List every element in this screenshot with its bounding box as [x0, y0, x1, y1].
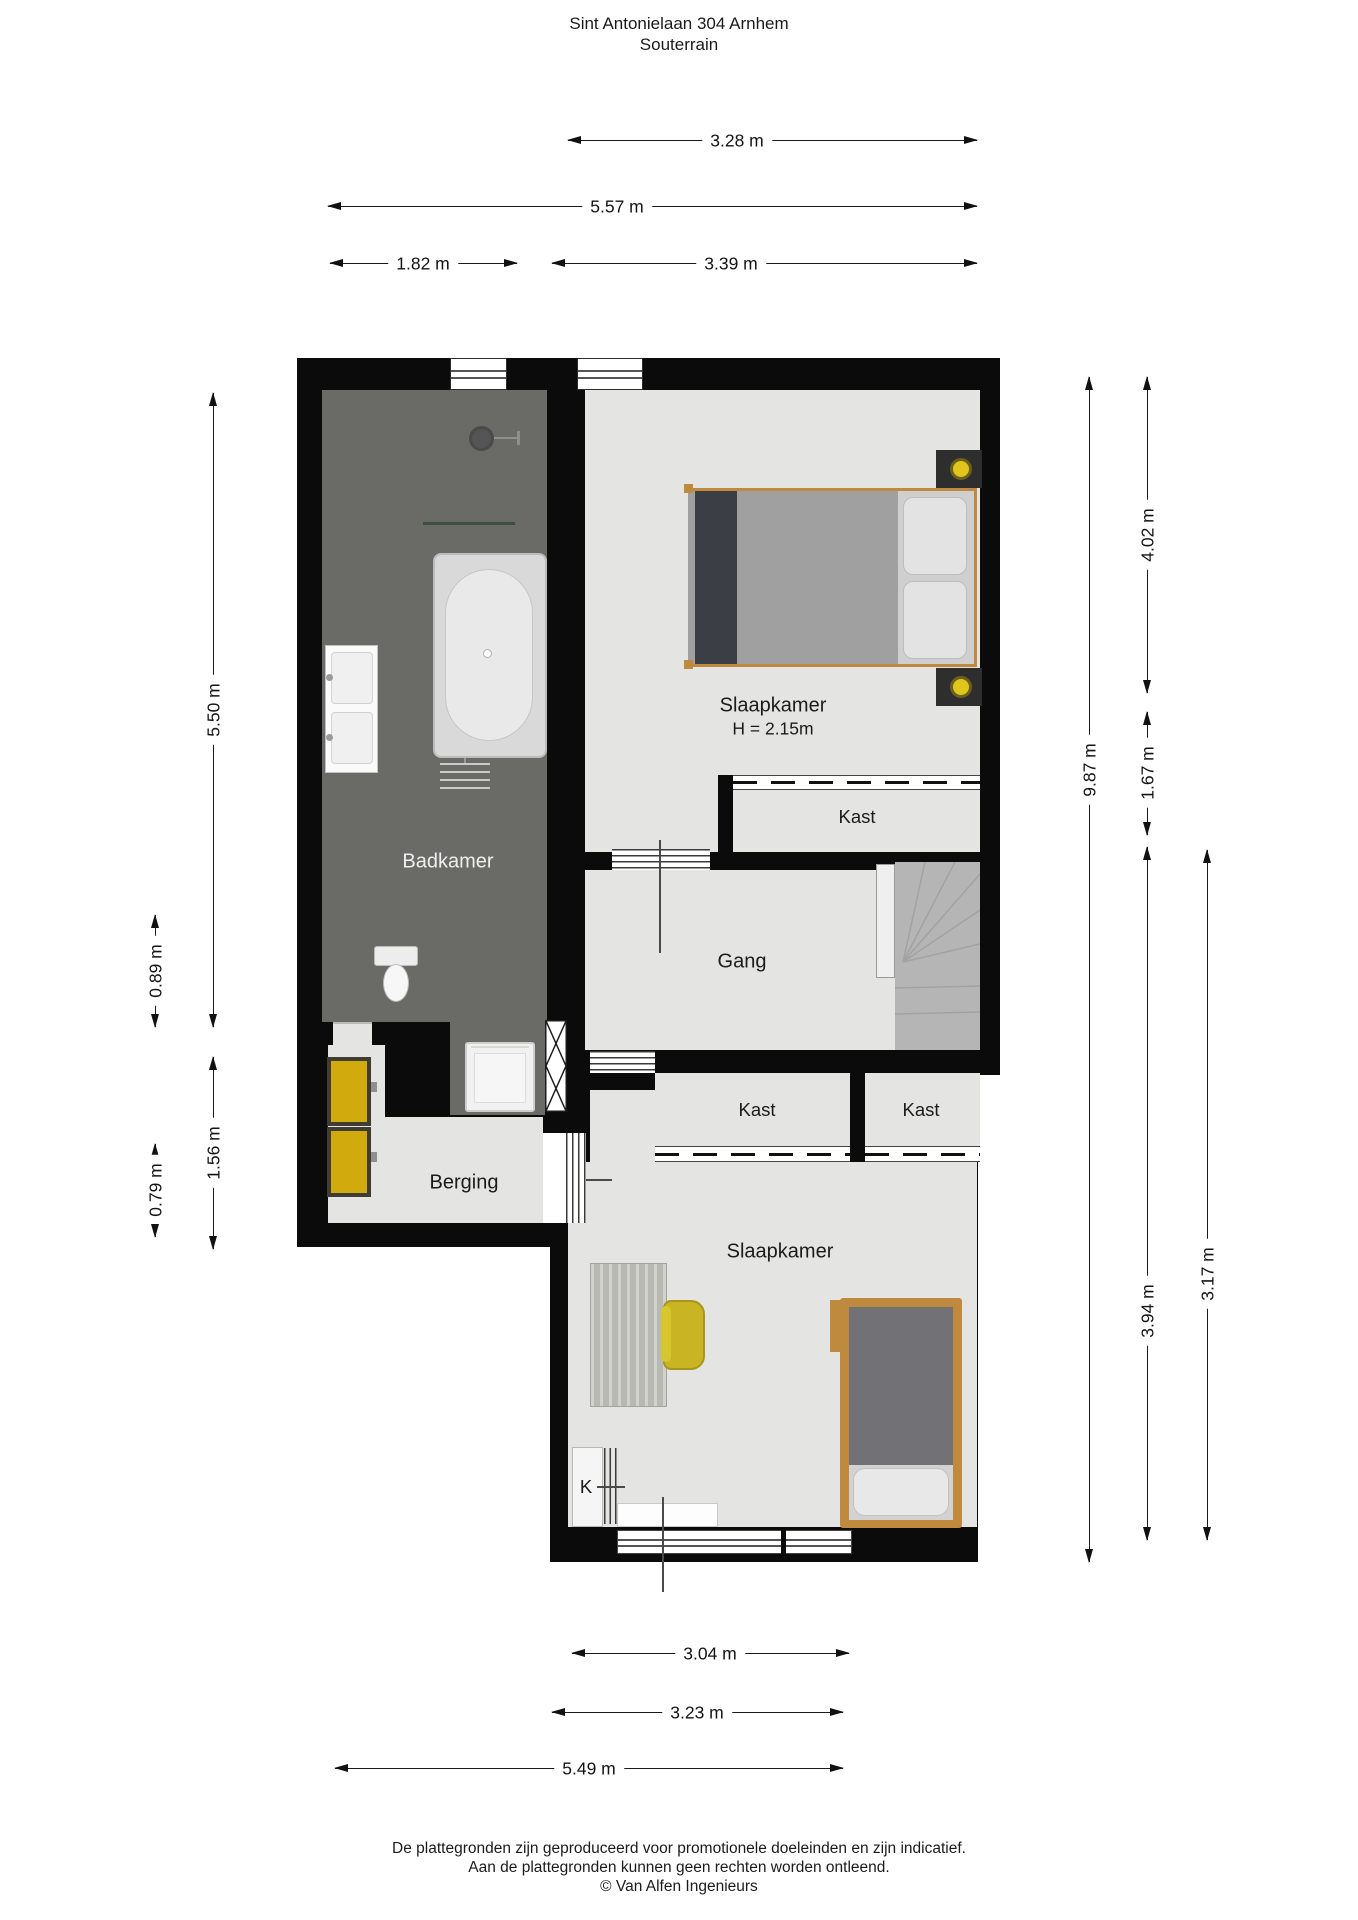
room-label-badkamer: Badkamer	[402, 851, 493, 874]
window-symbol-slaapkamer2	[617, 1530, 852, 1554]
dim-label: 5.50 m	[203, 675, 224, 745]
window-mullion	[781, 1530, 786, 1554]
dim-top-3_39: 3.39 m	[552, 263, 977, 264]
cv-unit-2	[327, 1127, 371, 1197]
dim-right-3_94: 3.94 m	[1147, 847, 1148, 1540]
dim-top-1_82: 1.82 m	[330, 263, 517, 264]
shower-head-icon	[469, 426, 494, 451]
dim-left-5_50: 5.50 m	[213, 393, 214, 1027]
window-symbol-slaapkamer1	[577, 358, 643, 390]
room-label-kast2: Kast	[738, 1099, 775, 1121]
door-marker-line	[659, 840, 661, 953]
dim-label: 4.02 m	[1137, 500, 1158, 570]
lamp-icon	[950, 458, 972, 480]
dim-label: 0.79 m	[145, 1155, 166, 1225]
room-label-slaapkamer2: Slaapkamer	[727, 1241, 834, 1264]
dim-label: 0.89 m	[145, 936, 166, 1006]
sliding-door-slaapkamer1	[612, 849, 710, 870]
dim-label: 3.28 m	[702, 130, 772, 151]
dim-label: 1.56 m	[203, 1118, 224, 1188]
stairs	[895, 862, 980, 1050]
dim-right-4_02: 4.02 m	[1147, 377, 1148, 693]
footer-disclaimer-1: De plattegronden zijn geproduceerd voor …	[0, 1840, 1358, 1858]
room-label-kast3: Kast	[902, 1099, 939, 1121]
stairs-handrail	[876, 864, 895, 978]
room-label-kitchenette: K	[580, 1476, 592, 1498]
dim-left-0_89: 0.89 m	[155, 915, 156, 1027]
bed-post	[684, 484, 693, 493]
dim-label: 3.23 m	[662, 1702, 732, 1723]
sliding-door-gang	[590, 1051, 655, 1073]
dim-bottom-3_04: 3.04 m	[572, 1653, 849, 1654]
dim-label: 9.87 m	[1079, 735, 1100, 805]
dim-label: 5.57 m	[582, 196, 652, 217]
section-marker-line	[662, 1497, 664, 1592]
window-symbol-badkamer	[450, 358, 507, 390]
door-symbol-badkamer	[440, 763, 490, 795]
dim-bottom-5_49: 5.49 m	[335, 1768, 843, 1769]
shower-bracket	[517, 431, 520, 445]
pillow	[853, 1468, 949, 1516]
cv-unit-valve-icon	[371, 1152, 377, 1162]
shower-arm	[494, 437, 519, 439]
desk	[590, 1263, 667, 1407]
dim-right-9_87: 9.87 m	[1089, 377, 1090, 1562]
bathtub	[433, 553, 547, 758]
bed-post	[684, 660, 693, 669]
floor-slaapkamer1-b	[585, 775, 718, 852]
double-bed	[688, 488, 977, 667]
washing-machine	[465, 1042, 535, 1112]
lamp-icon	[950, 676, 972, 698]
dim-label: 1.67 m	[1137, 738, 1158, 808]
closet-doors-kast2	[655, 1146, 850, 1162]
washbasin-double	[325, 645, 378, 773]
closet-doors-kast1	[733, 775, 980, 790]
footer-copyright: © Van Alfen Ingenieurs	[0, 1878, 1358, 1896]
floorplan-page: Sint Antonielaan 304 Arnhem Souterrain 3…	[0, 0, 1358, 1920]
bed-headboard-tab	[830, 1300, 843, 1352]
footer-disclaimer-2: Aan de plattegronden kunnen geen rechten…	[0, 1859, 1358, 1877]
dim-left-1_56: 1.56 m	[213, 1057, 214, 1249]
door-swing-line	[586, 1179, 612, 1181]
room-label-kast1: Kast	[838, 806, 875, 828]
page-title: Sint Antonielaan 304 Arnhem	[0, 14, 1358, 34]
dim-top-3_28: 3.28 m	[568, 140, 977, 141]
dim-label: 1.82 m	[388, 253, 458, 274]
pillow	[903, 581, 967, 659]
closet-doors-kast3	[865, 1146, 980, 1162]
room-label-berging: Berging	[430, 1172, 499, 1195]
shower-shelf	[423, 522, 515, 525]
single-bed	[840, 1298, 962, 1528]
toilet-tank	[374, 946, 418, 966]
room-label-gang: Gang	[718, 951, 767, 974]
dim-top-5_57: 5.57 m	[328, 206, 977, 207]
cv-unit-valve-icon	[371, 1082, 377, 1092]
toilet-bowl	[383, 964, 409, 1002]
floor-passage-slaapkamer2	[590, 1090, 655, 1162]
dim-label: 3.17 m	[1197, 1239, 1218, 1309]
dim-label: 3.04 m	[675, 1643, 745, 1664]
door-opening-berging	[543, 1133, 566, 1223]
dim-right-3_17: 3.17 m	[1207, 850, 1208, 1540]
cv-unit-1	[327, 1057, 371, 1126]
dim-label: 5.49 m	[554, 1758, 624, 1779]
shaft-symbol	[545, 1020, 567, 1112]
k-leader-line	[597, 1486, 625, 1488]
dim-left-0_79: 0.79 m	[155, 1144, 156, 1237]
page-subtitle: Souterrain	[0, 35, 1358, 55]
pillow	[903, 497, 967, 575]
door-opening-badkamer-berging	[333, 1022, 372, 1047]
sliding-door-berging	[566, 1133, 586, 1223]
window-sill	[617, 1503, 718, 1527]
faucet-icon	[326, 734, 333, 741]
bathtub-drain-icon	[483, 649, 492, 658]
dim-bottom-3_23: 3.23 m	[552, 1712, 843, 1713]
room-label-slaapkamer1-height: H = 2.15m	[732, 719, 813, 740]
room-label-slaapkamer1: Slaapkamer	[720, 695, 827, 718]
dim-label: 3.39 m	[696, 253, 766, 274]
desk-chair	[663, 1300, 705, 1370]
faucet-icon	[326, 674, 333, 681]
dim-label: 3.94 m	[1137, 1276, 1158, 1346]
dim-right-1_67: 1.67 m	[1147, 712, 1148, 835]
